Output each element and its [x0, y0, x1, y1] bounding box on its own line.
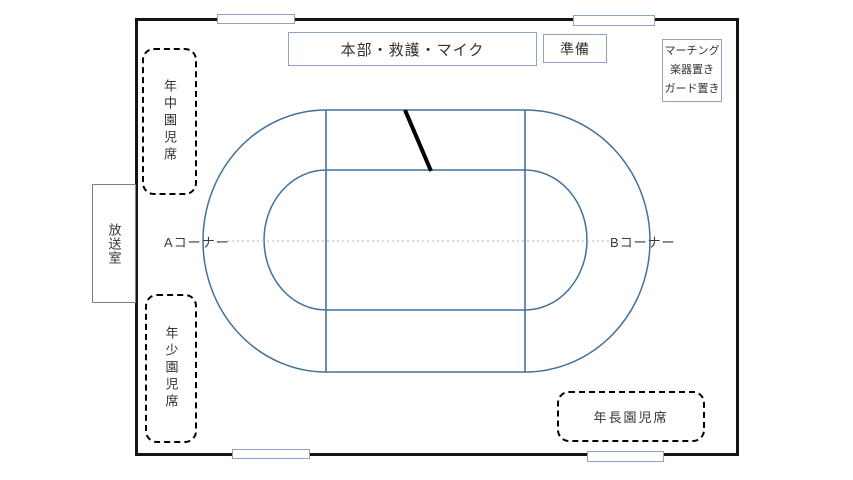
gate-bottom-left [232, 449, 310, 459]
middle-class-seats-label: 年中園児席 [160, 79, 179, 164]
senior-class-seats-label: 年長園児席 [593, 407, 668, 426]
preparation-box: 準備 [543, 34, 607, 63]
broadcast-room-label: 放送室 [105, 223, 124, 265]
young-class-seats-label: 年少園児席 [162, 326, 181, 411]
gate-bottom-right [587, 451, 664, 462]
sports-day-field-map: 本部・救護・マイク 準備 マーチング 楽器置き ガード置き 放送室 年中園児席 … [0, 0, 853, 480]
marching-label-line1: マーチング [665, 42, 720, 61]
gate-top-left [217, 14, 295, 24]
marching-equipment-box: マーチング 楽器置き ガード置き [662, 39, 722, 102]
middle-class-seats-box: 年中園児席 [142, 48, 197, 195]
preparation-label: 準備 [560, 39, 590, 59]
marching-label-line2: 楽器置き [670, 61, 714, 80]
corner-b-label: Bコーナー [610, 232, 676, 251]
senior-class-seats-box: 年長園児席 [557, 391, 705, 442]
headquarters-label: 本部・救護・マイク [341, 39, 485, 60]
start-line-mark [405, 110, 431, 171]
young-class-seats-box: 年少園児席 [145, 294, 197, 443]
broadcast-room-box: 放送室 [92, 184, 136, 303]
corner-a-label: Aコーナー [164, 232, 230, 251]
gate-top-right [573, 15, 655, 26]
inner-track-oval [264, 170, 587, 310]
headquarters-firstaid-mic-box: 本部・救護・マイク [288, 32, 537, 66]
marching-label-line3: ガード置き [665, 80, 720, 99]
